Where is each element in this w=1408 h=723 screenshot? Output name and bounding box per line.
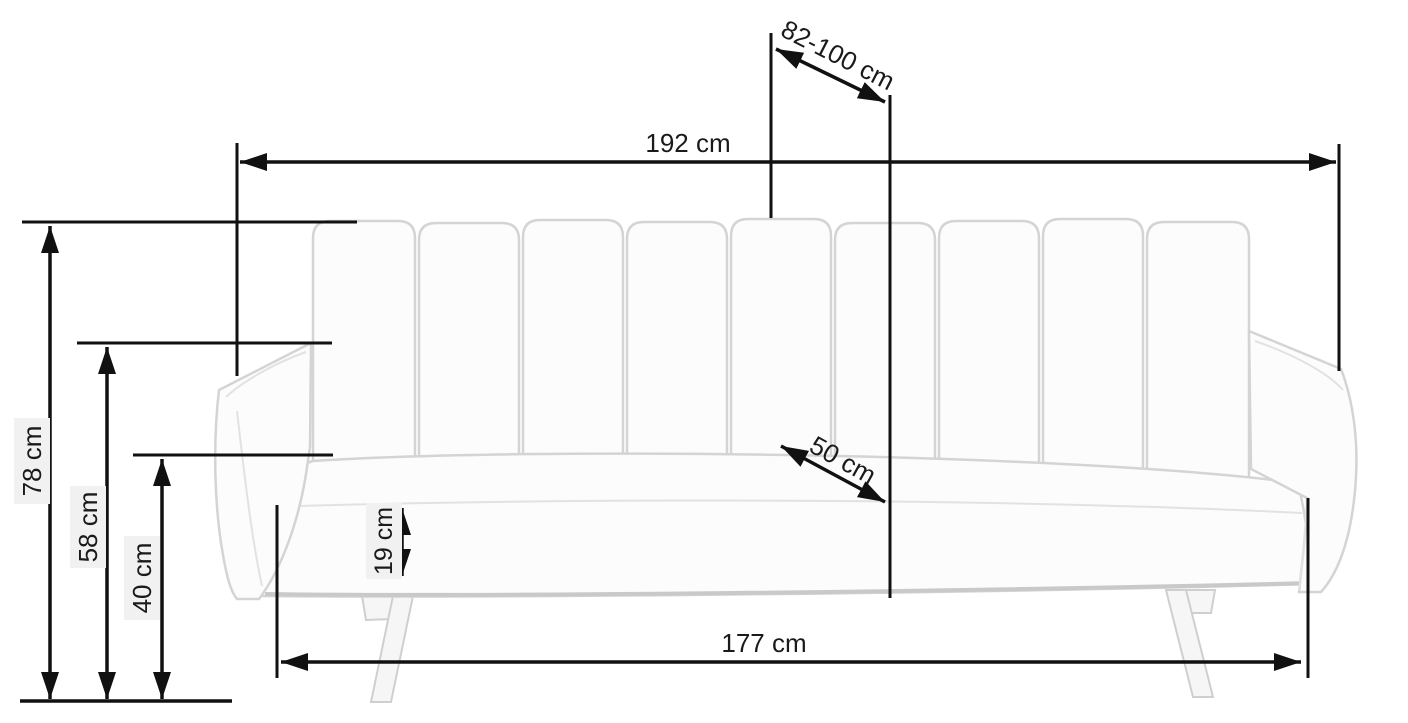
backrest-channel xyxy=(313,221,415,478)
dim-cushion-thickness-label: 19 cm xyxy=(370,507,398,575)
backrest xyxy=(313,219,1249,478)
backrest-channel xyxy=(1147,222,1249,478)
dim-bed-depth-label: 82-100 cm xyxy=(776,14,899,97)
dim-armrest-height-label: 58 cm xyxy=(73,492,103,563)
backrest-channel xyxy=(523,220,623,478)
dim-cushion-thickness: 19 cm xyxy=(366,503,402,579)
dim-base-width-label: 177 cm xyxy=(721,628,806,658)
backrest-channel xyxy=(835,223,935,478)
dimension-drawing: 192 cm 82-100 cm 78 cm 58 cm 40 cm 19 cm xyxy=(0,0,1408,723)
dim-seat-height-label: 40 cm xyxy=(127,543,157,614)
seat-cushion xyxy=(261,454,1312,597)
seat xyxy=(261,454,1312,597)
backrest-channel xyxy=(627,222,727,478)
backrest-channel xyxy=(1043,219,1143,478)
sofa-dimension-diagram: 192 cm 82-100 cm 78 cm 58 cm 40 cm 19 cm xyxy=(0,0,1408,723)
dim-total-height-label: 78 cm xyxy=(17,426,47,497)
dim-total-width-label: 192 cm xyxy=(645,128,730,158)
backrest-channel xyxy=(419,223,519,478)
backrest-channel xyxy=(939,221,1039,478)
